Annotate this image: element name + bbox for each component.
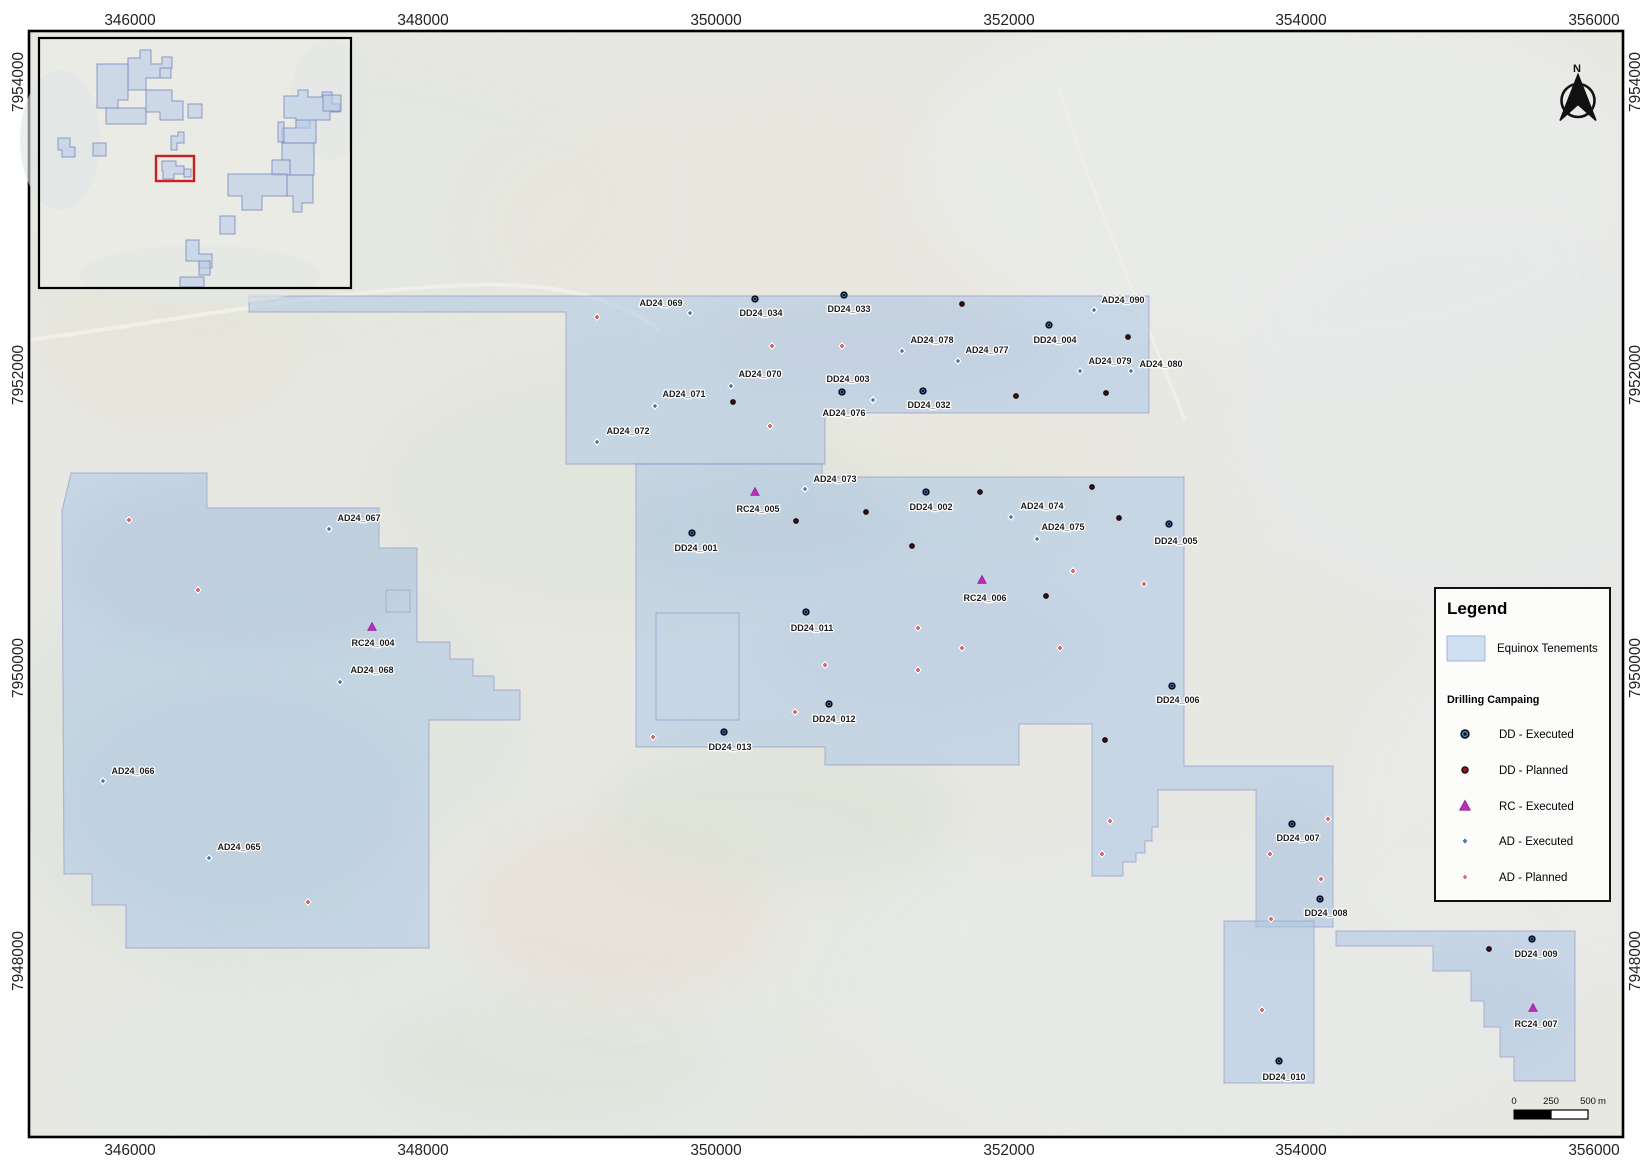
svg-text:AD24_065: AD24_065: [217, 842, 260, 852]
svg-text:DD24_010: DD24_010: [1262, 1072, 1305, 1082]
svg-text:346000: 346000: [104, 12, 155, 29]
svg-text:7950000: 7950000: [1627, 638, 1644, 698]
svg-text:356000: 356000: [1568, 12, 1619, 29]
svg-text:7948000: 7948000: [1627, 931, 1644, 991]
svg-text:DD24_032: DD24_032: [907, 400, 950, 410]
svg-text:DD24_001: DD24_001: [674, 543, 717, 553]
svg-text:7948000: 7948000: [10, 931, 27, 991]
svg-text:7952000: 7952000: [10, 345, 27, 405]
svg-text:RC24_007: RC24_007: [1514, 1019, 1557, 1029]
svg-text:7954000: 7954000: [1627, 52, 1644, 112]
svg-text:348000: 348000: [397, 12, 448, 29]
svg-text:AD24_074: AD24_074: [1020, 501, 1063, 511]
svg-text:348000: 348000: [397, 1142, 448, 1159]
svg-text:AD24_072: AD24_072: [606, 426, 649, 436]
svg-text:RC - Executed: RC - Executed: [1499, 801, 1574, 813]
svg-text:AD24_077: AD24_077: [965, 345, 1008, 355]
svg-text:DD24_006: DD24_006: [1156, 695, 1199, 705]
svg-text:RC24_005: RC24_005: [736, 504, 779, 514]
svg-text:AD24_076: AD24_076: [822, 408, 865, 418]
svg-text:AD - Executed: AD - Executed: [1499, 836, 1573, 848]
svg-text:DD24_013: DD24_013: [708, 742, 751, 752]
svg-text:AD24_069: AD24_069: [639, 298, 682, 308]
svg-text:DD24_008: DD24_008: [1304, 908, 1347, 918]
svg-text:Equinox Tenements: Equinox Tenements: [1497, 643, 1598, 655]
svg-text:DD - Planned: DD - Planned: [1499, 765, 1568, 777]
svg-text:354000: 354000: [1275, 1142, 1326, 1159]
svg-text:DD24_009: DD24_009: [1514, 949, 1557, 959]
svg-text:350000: 350000: [690, 12, 741, 29]
svg-text:RC24_006: RC24_006: [963, 593, 1006, 603]
svg-text:AD24_073: AD24_073: [813, 474, 856, 484]
svg-text:N: N: [1573, 63, 1581, 75]
svg-text:DD24_004: DD24_004: [1033, 335, 1076, 345]
svg-text:352000: 352000: [983, 1142, 1034, 1159]
svg-text:Drilling Campaing: Drilling Campaing: [1447, 694, 1539, 706]
svg-text:DD24_034: DD24_034: [739, 308, 782, 318]
svg-text:7952000: 7952000: [1627, 345, 1644, 405]
svg-text:DD24_003: DD24_003: [826, 374, 869, 384]
svg-text:DD24_005: DD24_005: [1154, 536, 1197, 546]
svg-text:352000: 352000: [983, 12, 1034, 29]
svg-text:7950000: 7950000: [10, 638, 27, 698]
svg-text:DD24_012: DD24_012: [812, 714, 855, 724]
svg-text:500: 500: [1580, 1096, 1596, 1107]
svg-text:AD24_068: AD24_068: [350, 665, 393, 675]
svg-text:DD24_002: DD24_002: [909, 502, 952, 512]
svg-text:7954000: 7954000: [10, 52, 27, 112]
svg-text:250: 250: [1543, 1096, 1559, 1107]
svg-text:350000: 350000: [690, 1142, 741, 1159]
svg-text:356000: 356000: [1568, 1142, 1619, 1159]
svg-text:DD24_033: DD24_033: [827, 304, 870, 314]
svg-text:DD24_011: DD24_011: [791, 623, 834, 633]
svg-text:AD24_080: AD24_080: [1139, 359, 1182, 369]
svg-text:354000: 354000: [1275, 12, 1326, 29]
svg-text:346000: 346000: [104, 1142, 155, 1159]
svg-text:AD24_079: AD24_079: [1088, 356, 1131, 366]
svg-text:AD - Planned: AD - Planned: [1499, 872, 1567, 884]
svg-text:AD24_078: AD24_078: [910, 335, 953, 345]
svg-text:0: 0: [1511, 1096, 1516, 1107]
svg-text:RC24_004: RC24_004: [351, 638, 394, 648]
svg-text:AD24_075: AD24_075: [1041, 522, 1084, 532]
svg-text:m: m: [1598, 1096, 1606, 1107]
svg-text:Legend: Legend: [1447, 599, 1507, 618]
svg-text:AD24_071: AD24_071: [662, 389, 705, 399]
svg-text:AD24_070: AD24_070: [738, 369, 781, 379]
svg-text:AD24_090: AD24_090: [1101, 295, 1144, 305]
svg-text:AD24_067: AD24_067: [337, 513, 380, 523]
svg-text:AD24_066: AD24_066: [111, 766, 154, 776]
svg-text:DD - Executed: DD - Executed: [1499, 729, 1574, 741]
svg-text:DD24_007: DD24_007: [1276, 833, 1319, 843]
